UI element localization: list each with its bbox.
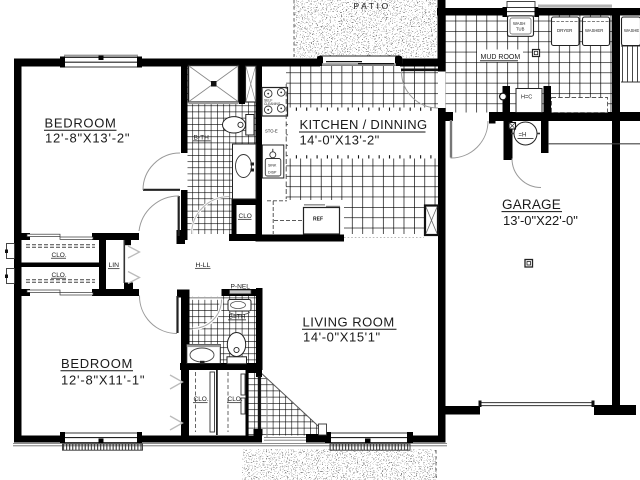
svg-text:DISP: DISP bbox=[268, 171, 277, 175]
svg-text:DRYER: DRYER bbox=[557, 28, 572, 33]
svg-text:LIN: LIN bbox=[109, 262, 120, 269]
svg-text:13'-0"X22'-0": 13'-0"X22'-0" bbox=[503, 213, 578, 228]
svg-text:H=C: H=C bbox=[521, 95, 532, 101]
svg-text:GARAGE: GARAGE bbox=[502, 197, 561, 212]
svg-text:KITCHEN / DINNING: KITCHEN / DINNING bbox=[300, 117, 428, 132]
svg-text:BEDROOM: BEDROOM bbox=[61, 356, 133, 371]
svg-text:12'-8"X13'-2": 12'-8"X13'-2" bbox=[45, 130, 130, 145]
svg-text:CLO.: CLO. bbox=[52, 272, 67, 279]
svg-text:CLO.: CLO. bbox=[194, 396, 209, 403]
svg-text:WASH: WASH bbox=[513, 21, 525, 26]
svg-text:CLEANING: CLEANING bbox=[264, 102, 281, 106]
svg-text:B=TH: B=TH bbox=[229, 313, 246, 320]
svg-text:LIVING ROOM: LIVING ROOM bbox=[303, 315, 395, 330]
svg-text:PATIO: PATIO bbox=[354, 1, 391, 11]
svg-text:12'-8"X11'-1": 12'-8"X11'-1" bbox=[61, 373, 145, 388]
svg-text:CLO.: CLO. bbox=[228, 396, 243, 403]
svg-text:MUD ROOM: MUD ROOM bbox=[481, 54, 521, 61]
svg-text:CLO: CLO bbox=[239, 213, 252, 220]
svg-text:14'-0"X13'-2": 14'-0"X13'-2" bbox=[300, 132, 380, 147]
svg-text:H-LL: H-LL bbox=[196, 262, 211, 269]
svg-text:REF: REF bbox=[313, 217, 323, 223]
svg-text:B-TH: B-TH bbox=[194, 134, 210, 141]
svg-text:BEDROOM: BEDROOM bbox=[45, 116, 117, 131]
svg-text:14'-0"X15'1": 14'-0"X15'1" bbox=[303, 329, 381, 344]
svg-text:STO-E: STO-E bbox=[265, 129, 278, 134]
svg-text:CLO.: CLO. bbox=[52, 252, 67, 259]
svg-text:TUB: TUB bbox=[516, 27, 525, 32]
svg-text:WASHER: WASHER bbox=[585, 28, 603, 33]
svg-text:SINK: SINK bbox=[268, 164, 277, 168]
svg-text:WASHE: WASHE bbox=[624, 28, 639, 33]
svg-text:=H: =H bbox=[519, 133, 527, 139]
